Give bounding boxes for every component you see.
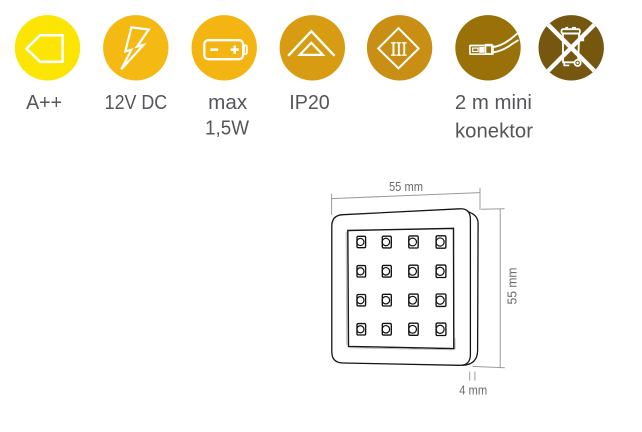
svg-text:max: max (208, 92, 247, 114)
svg-text:55 mm: 55 mm (506, 268, 520, 305)
svg-text:A++: A++ (26, 92, 62, 114)
svg-text:IP20: IP20 (289, 92, 330, 114)
svg-text:konektor: konektor (455, 121, 533, 143)
svg-text:55 mm: 55 mm (389, 180, 423, 194)
svg-text:1,5W: 1,5W (205, 118, 249, 140)
svg-text:2 m mini: 2 m mini (455, 92, 532, 114)
svg-text:12V DC: 12V DC (105, 92, 168, 114)
svg-text:4 mm: 4 mm (459, 383, 487, 397)
